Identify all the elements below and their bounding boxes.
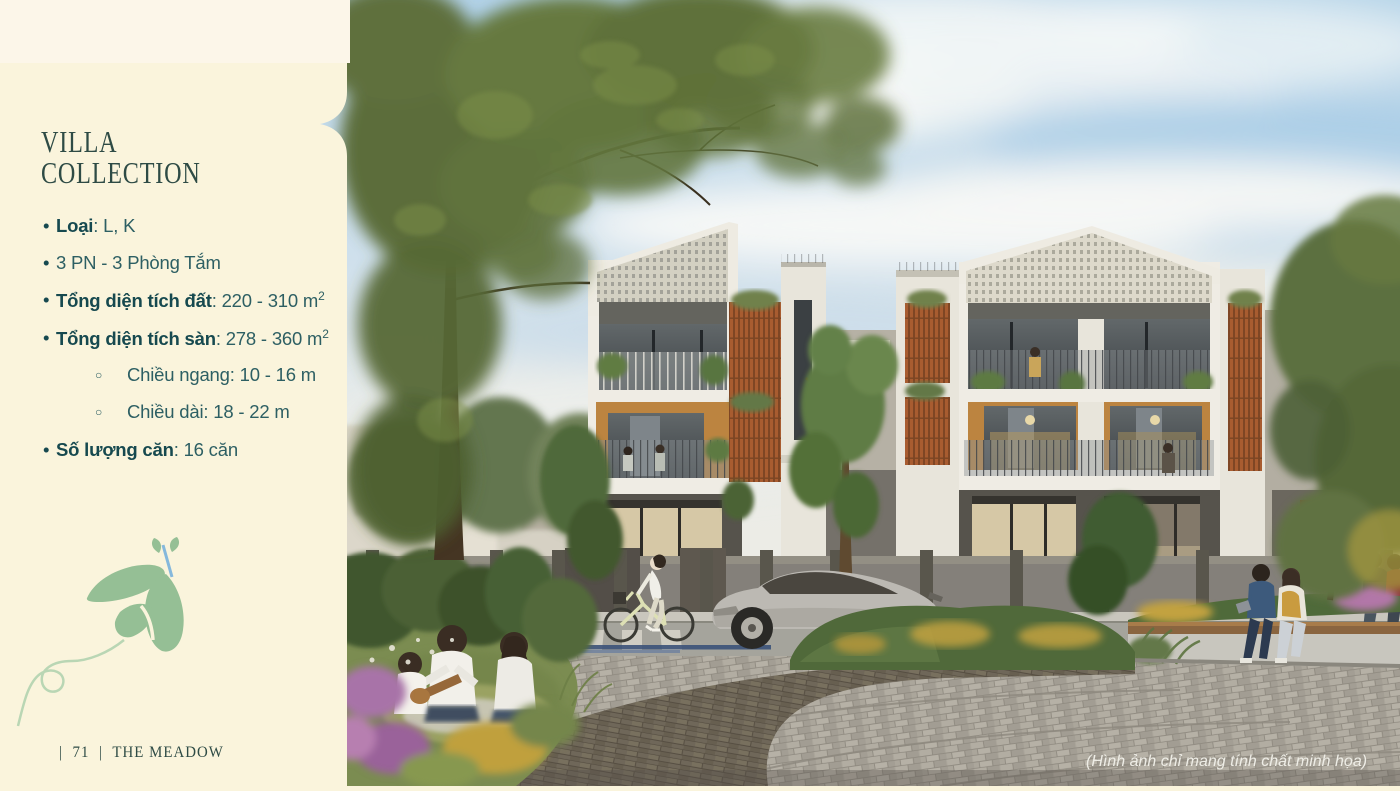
- svg-text:(Hình ảnh chỉ mang tính chất m: (Hình ảnh chỉ mang tính chất minh họa): [1086, 753, 1367, 770]
